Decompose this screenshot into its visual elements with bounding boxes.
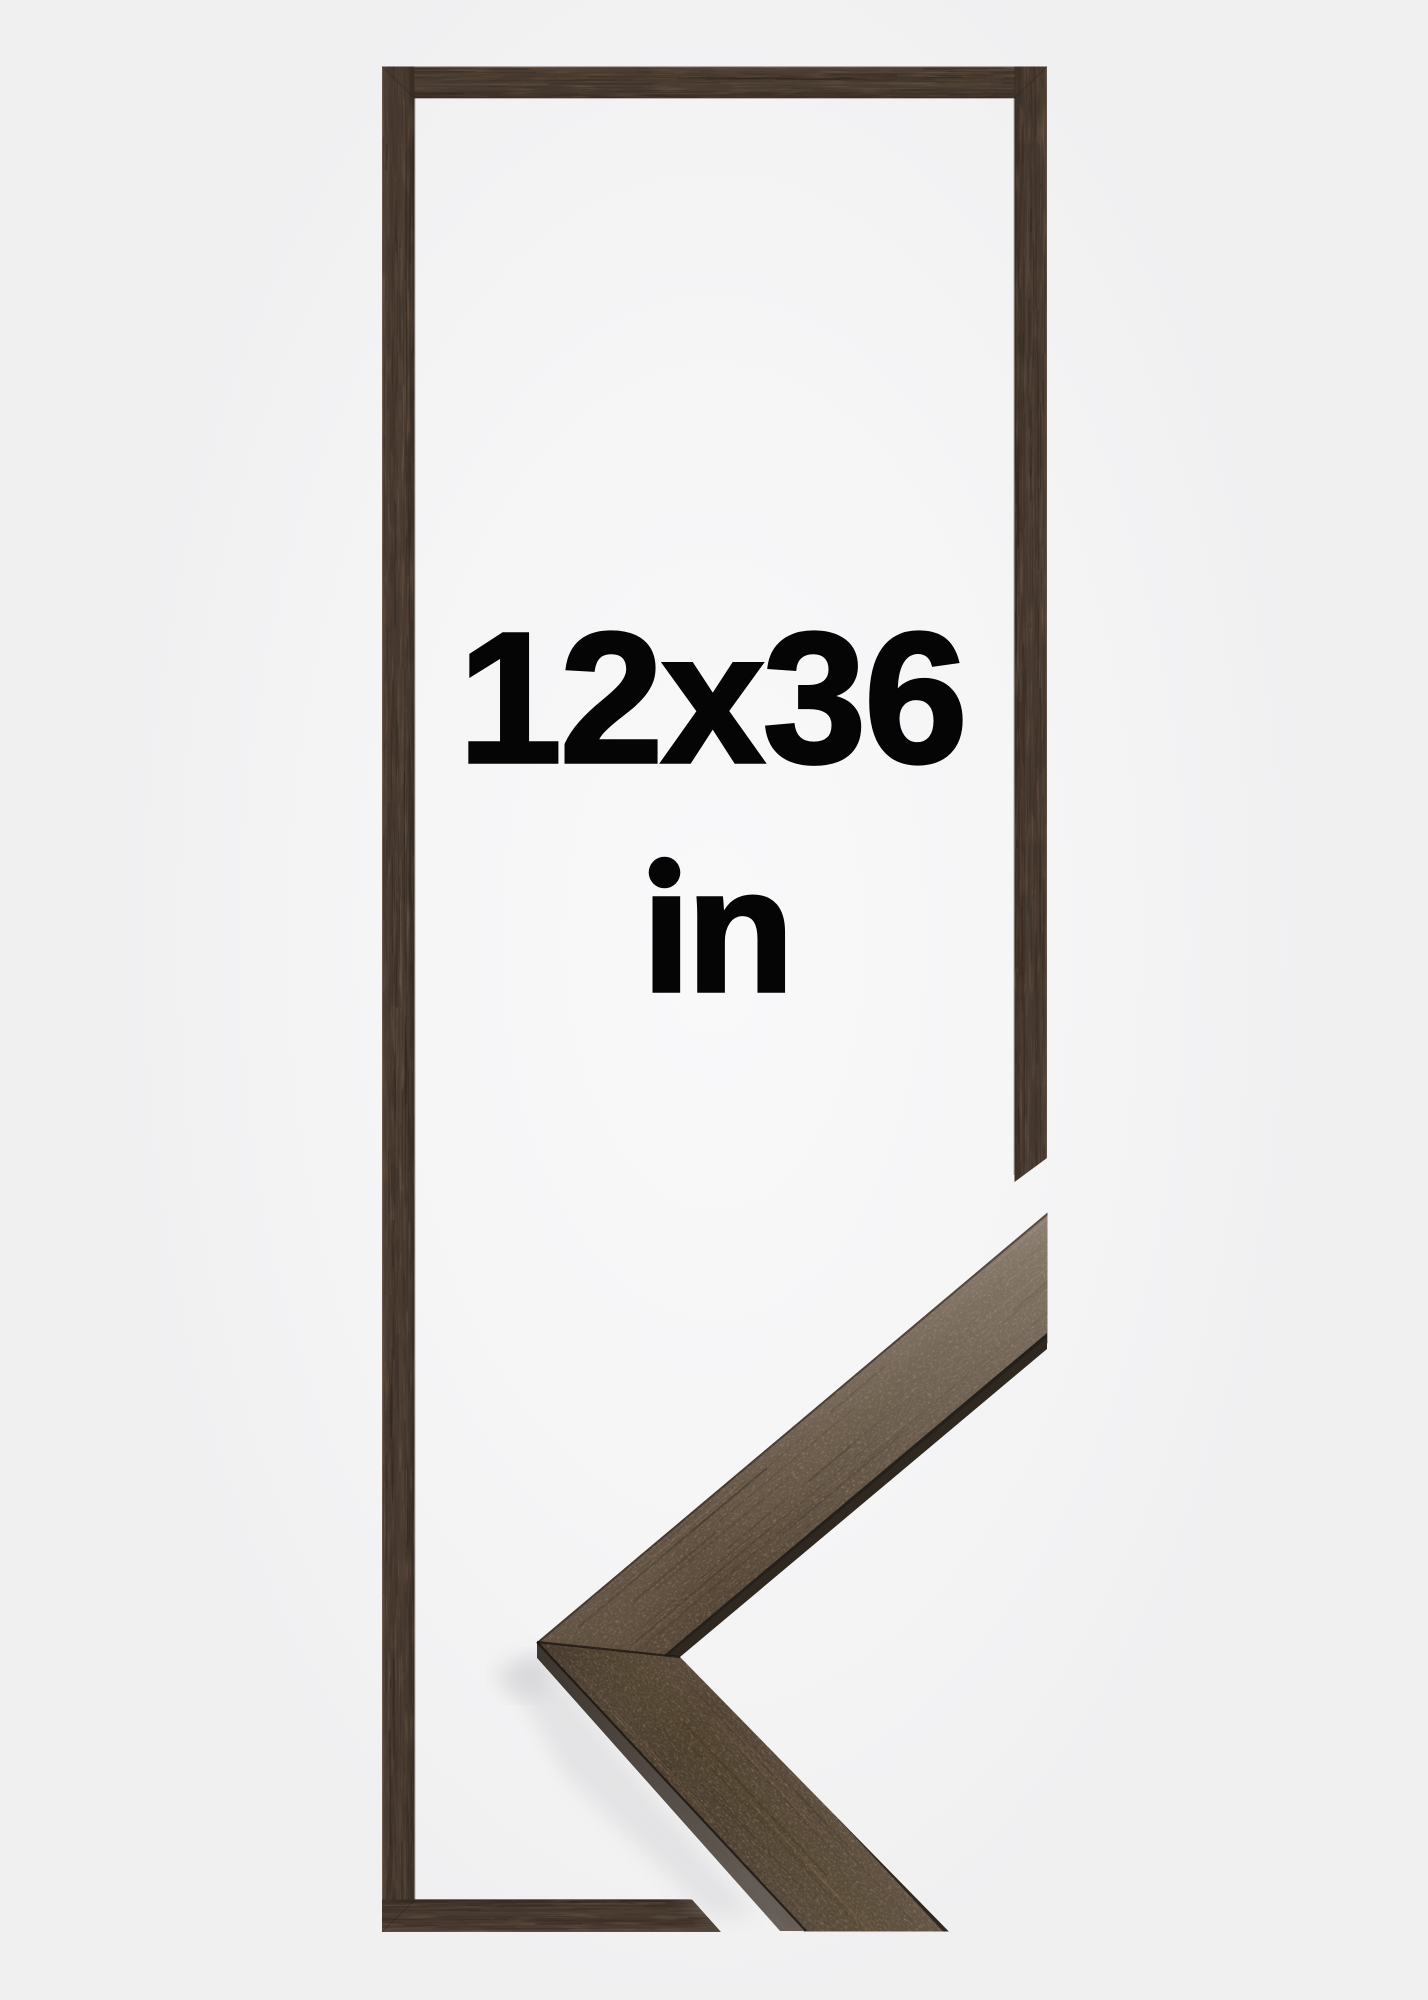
svg-text:12x36: 12x36 bbox=[458, 595, 965, 802]
